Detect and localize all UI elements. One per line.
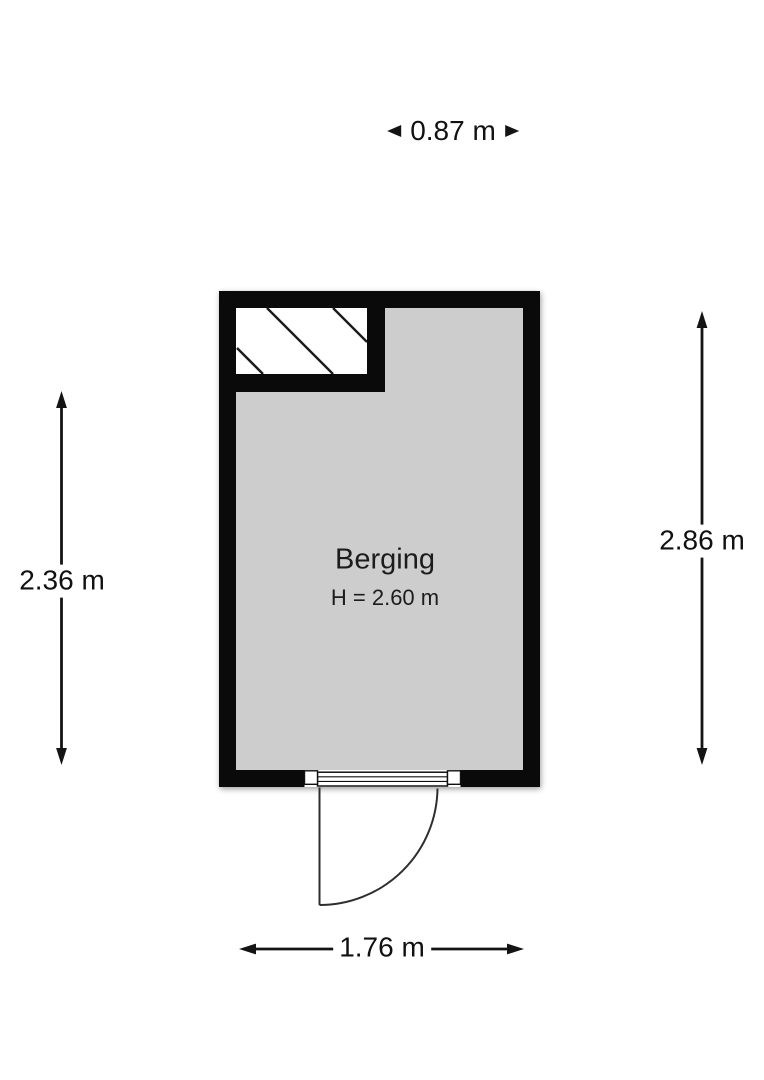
- hatched-void: [236, 308, 385, 392]
- left-dimension-label: 2.36 m: [13, 565, 111, 598]
- door-threshold: [318, 772, 448, 786]
- door-swing: [320, 788, 438, 906]
- top-dimension: 0.87 m: [387, 115, 519, 147]
- door-opening: [305, 770, 461, 787]
- room-name-label: Berging: [335, 544, 435, 577]
- arrowhead-left-icon: [239, 944, 256, 955]
- door-post-left: [305, 771, 318, 785]
- arrowhead-down-icon: [697, 748, 708, 765]
- floorplan-drawing: [0, 0, 764, 1080]
- arrowhead-left-icon: [387, 125, 401, 137]
- arrowhead-up-icon: [697, 311, 708, 328]
- top-dimension-label: 0.87 m: [410, 115, 496, 147]
- bottom-dimension-label: 1.76 m: [333, 932, 431, 965]
- floorplan-page: 0.87 m 2.36 m 2.86 m 1.76 m Berging H = …: [0, 0, 764, 1080]
- arrowhead-right-icon: [507, 944, 524, 955]
- room-height-label: H = 2.60 m: [331, 585, 439, 611]
- door-swing-arc: [320, 789, 438, 906]
- door-post-right: [448, 771, 461, 785]
- arrowhead-down-icon: [56, 748, 67, 765]
- arrowhead-right-icon: [505, 125, 519, 137]
- void-bottom-wall: [236, 374, 385, 392]
- right-dimension-label: 2.86 m: [653, 525, 751, 558]
- arrowhead-up-icon: [56, 391, 67, 408]
